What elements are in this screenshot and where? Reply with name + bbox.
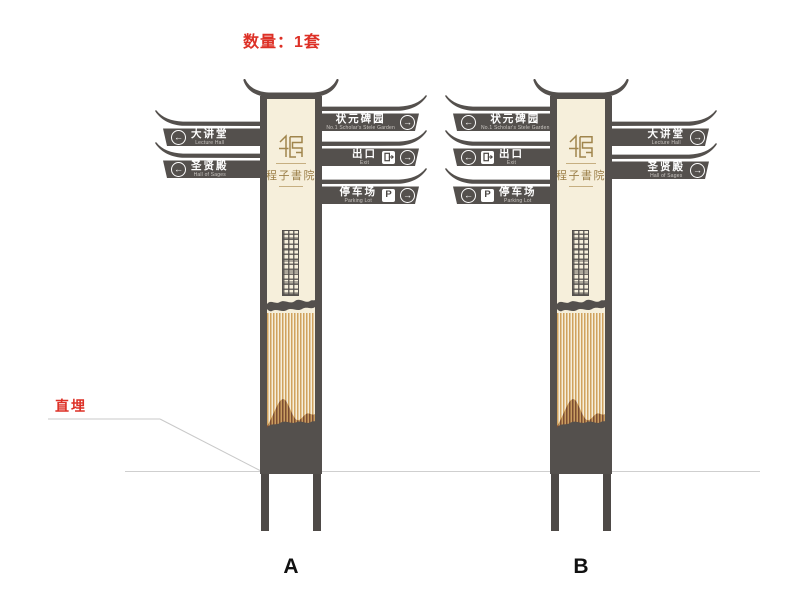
sign-title: 状元碑园 [490,114,540,125]
logo-block: 程子書院 [267,133,315,187]
arrow-left-icon: ← [461,188,476,203]
sign-lecture-hall: 大讲堂Lecture Hall → [604,110,720,146]
sign-subtitle: Parking Lot [504,199,532,204]
sign-subtitle: Parking Lot [345,199,373,204]
sign-subtitle: Hall of Sages [194,173,226,178]
pole-face: 程子書院 [557,99,605,474]
sign-title: 停车场 [340,187,378,198]
sign-subtitle: Hall of Sages [650,174,682,179]
lattice-ornament [282,230,299,296]
arrow-left-icon: ← [461,150,476,165]
arrow-right-icon: → [400,115,415,130]
variant-label-b: B [559,555,603,579]
quantity-label: 数量：1套 [243,28,321,52]
burial-label: 直埋 [55,396,87,416]
sign-hall-of-sages: ← 圣贤殿Hall of Sages [152,142,268,178]
sign-title: 大讲堂 [191,129,229,140]
base-band [267,410,315,474]
logo-block: 程子書院 [557,133,605,187]
sign-title: 圣贤殿 [648,162,686,173]
logo-title: 程子書院 [557,167,605,183]
sign-parking: ← P 停车场Parking Lot [442,168,558,204]
logo-caption-line [566,163,596,164]
buried-leg [313,474,321,531]
academy-logo-icon [278,133,304,159]
sign-title: 状元碑园 [336,114,386,125]
arrow-right-icon: → [400,150,415,165]
sign-title: 圣贤殿 [191,161,229,172]
wave-divider [267,295,315,315]
exit-icon [382,151,395,164]
signage-design-sheet: 数量：1套 直埋 ← 大讲堂Lecture Hall ← [0,0,800,615]
buried-leg [551,474,559,531]
sign-title: 出口 [352,149,377,160]
sign-parking: 停车场Parking Lot P → [314,168,430,204]
buried-leg [261,474,269,531]
parking-icon: P [382,189,395,202]
sign-exit: 出口Exit → [314,130,430,166]
buried-leg [603,474,611,531]
pole-body: 程子書院 [550,96,612,474]
sign-subtitle: Exit [360,161,369,166]
sign-title: 大讲堂 [648,129,686,140]
pole-face: 程子書院 [267,99,315,474]
base-band [557,410,605,474]
logo-caption-line [279,186,303,187]
arrow-right-icon: → [690,163,705,178]
academy-logo-icon [568,133,594,159]
variant-label-a: A [269,555,313,579]
arrow-left-icon: ← [171,162,186,177]
exit-icon [481,151,494,164]
sign-stele-garden: 状元碑园No.1 Scholar's Stele Garden → [314,95,430,131]
arrow-right-icon: → [400,188,415,203]
sign-title: 停车场 [499,187,537,198]
roof-cap [243,79,339,97]
guide-lines [0,0,800,615]
sign-stele-garden: ← 状元碑园No.1 Scholar's Stele Garden [442,95,558,131]
logo-title: 程子書院 [267,167,315,183]
logo-caption-line [276,163,306,164]
logo-caption-line [569,186,593,187]
sign-exit: ← 出口Exit [442,130,558,166]
sign-title: 出口 [499,149,524,160]
sign-subtitle: Exit [507,161,516,166]
sign-hall-of-sages: 圣贤殿Hall of Sages → [604,143,720,179]
lattice-ornament [572,230,589,296]
wave-divider [557,295,605,315]
arrow-left-icon: ← [461,115,476,130]
parking-icon: P [481,189,494,202]
roof-cap [533,79,629,97]
pole-body: 程子書院 [260,96,322,474]
sign-lecture-hall: ← 大讲堂Lecture Hall [152,110,268,146]
